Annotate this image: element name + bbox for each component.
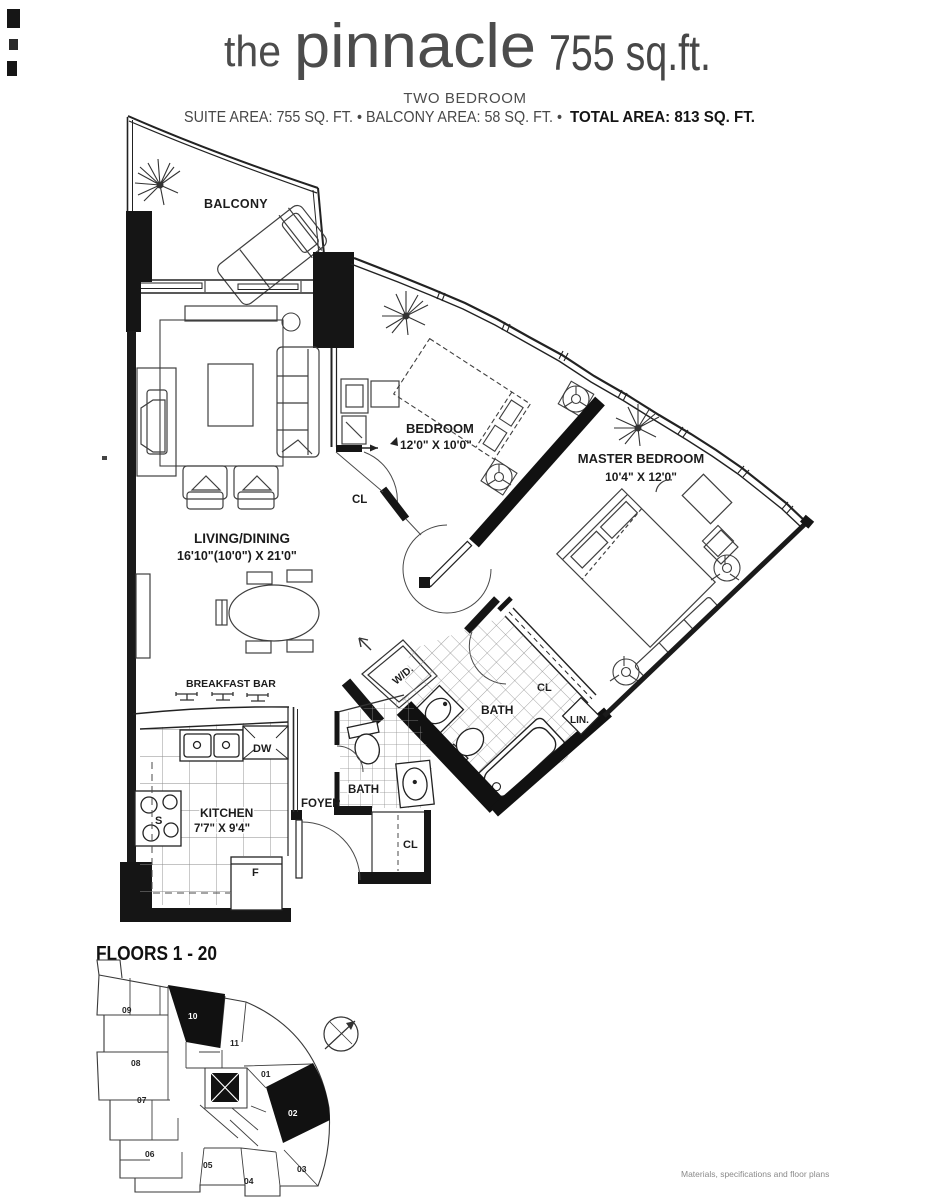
svg-text:Materials, specifications and: Materials, specifications and floor plan…: [681, 1169, 829, 1179]
svg-text:FOYER: FOYER: [301, 798, 341, 810]
svg-text:CL: CL: [352, 494, 367, 506]
svg-text:FLOORS 1 - 20: FLOORS 1 - 20: [96, 943, 217, 965]
svg-text:10'4" X 12'0": 10'4" X 12'0": [605, 470, 677, 484]
svg-text:09: 09: [122, 1005, 132, 1015]
svg-text:755 sq.ft.: 755 sq.ft.: [549, 25, 711, 81]
svg-text:04: 04: [244, 1176, 254, 1186]
svg-text:S: S: [155, 815, 162, 827]
svg-text:12'0" X 10'0": 12'0" X 10'0": [400, 438, 472, 452]
svg-text:MASTER BEDROOM: MASTER BEDROOM: [578, 451, 704, 466]
svg-text:01: 01: [261, 1069, 271, 1079]
svg-text:02: 02: [288, 1108, 298, 1118]
svg-text:KITCHEN: KITCHEN: [200, 806, 253, 820]
svg-text:03: 03: [297, 1164, 307, 1174]
svg-text:the: the: [224, 27, 281, 76]
svg-text:BEDROOM: BEDROOM: [406, 421, 474, 436]
svg-text:06: 06: [145, 1149, 155, 1159]
svg-text:LIVING/DINING: LIVING/DINING: [194, 531, 290, 546]
svg-text:F: F: [252, 867, 259, 879]
svg-text:BATH: BATH: [481, 703, 513, 717]
svg-text:CL: CL: [403, 839, 418, 851]
svg-text:05: 05: [203, 1160, 213, 1170]
svg-text:16'10"(10'0") X 21'0": 16'10"(10'0") X 21'0": [177, 549, 297, 563]
svg-text:11: 11: [230, 1038, 239, 1048]
svg-text:BREAKFAST BAR: BREAKFAST BAR: [186, 678, 276, 690]
svg-text:LIN.: LIN.: [570, 715, 589, 726]
svg-text:pinnacle: pinnacle: [294, 12, 536, 81]
svg-text:BALCONY: BALCONY: [204, 197, 268, 211]
svg-text:07: 07: [137, 1095, 147, 1105]
svg-text:08: 08: [131, 1058, 141, 1068]
svg-text:TWO BEDROOM: TWO BEDROOM: [403, 90, 526, 107]
svg-text:10: 10: [188, 1011, 198, 1021]
svg-text:SUITE AREA: 755 SQ. FT. • BA: SUITE AREA: 755 SQ. FT. • BALCONY AREA: …: [184, 109, 562, 126]
svg-text:BATH: BATH: [348, 784, 379, 796]
svg-text:7'7" X 9'4": 7'7" X 9'4": [194, 823, 250, 835]
svg-text:DW: DW: [253, 743, 272, 755]
svg-text:TOTAL AREA: 813 SQ. FT.: TOTAL AREA: 813 SQ. FT.: [570, 109, 755, 126]
